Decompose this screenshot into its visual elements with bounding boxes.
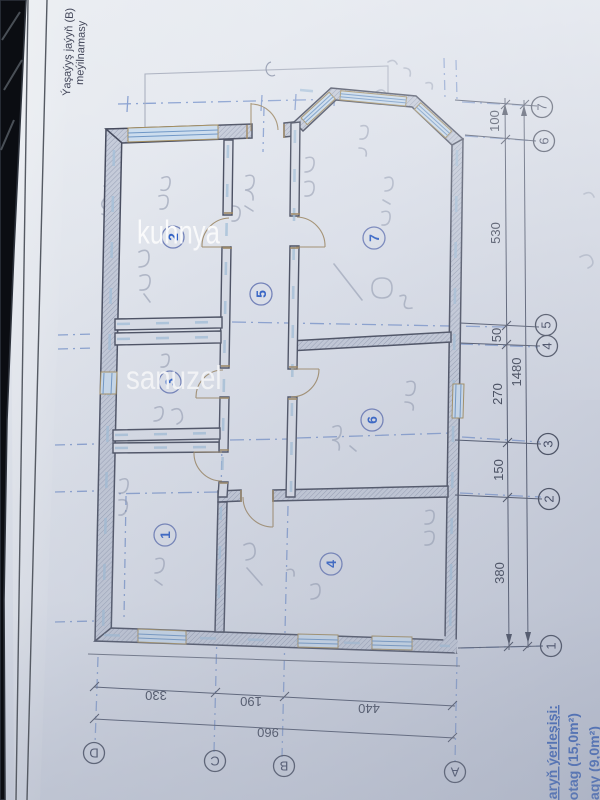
svg-text:meýilnamasy: meýilnamasy	[74, 20, 88, 85]
